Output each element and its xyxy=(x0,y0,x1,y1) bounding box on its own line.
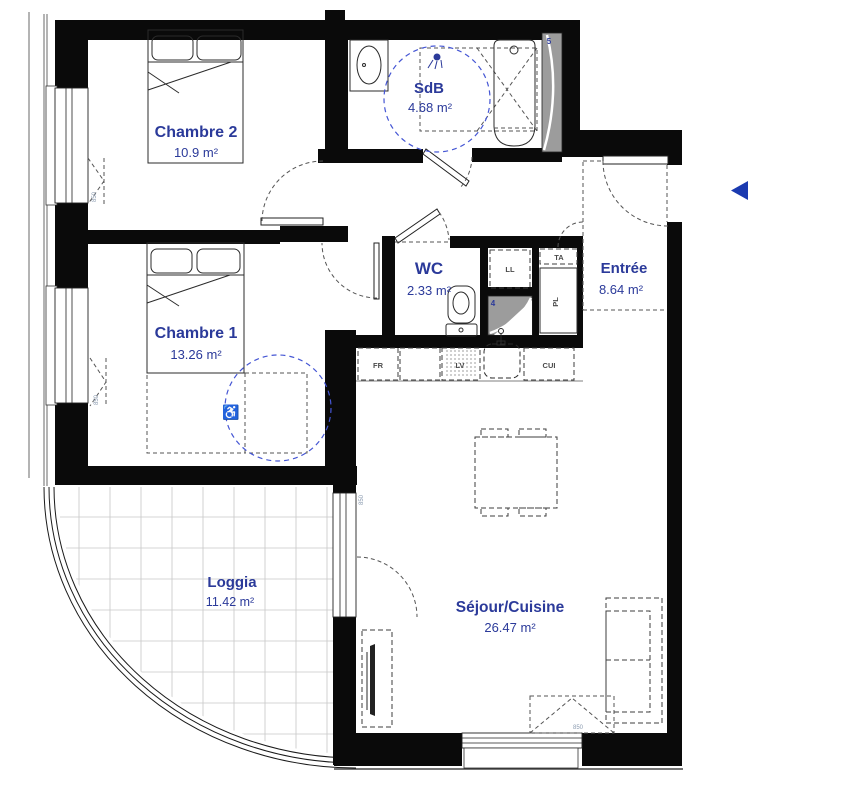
wheelchair-icon: ♿ xyxy=(222,404,239,421)
chambre1-label: Chambre 1 xyxy=(155,325,238,342)
cooktop-label: CUI xyxy=(543,361,556,370)
loggia-door-window xyxy=(333,493,417,617)
chambre1-window xyxy=(46,286,88,405)
sill-dim-2: 850 xyxy=(94,394,100,405)
shaft-5-label: 5 xyxy=(547,37,552,46)
entrance-arrow-icon xyxy=(731,181,748,200)
wc-area: 2.33 m² xyxy=(407,283,452,298)
entry-door xyxy=(603,156,668,226)
shaft-4-label: 4 xyxy=(491,299,496,308)
dishwasher-label: LV xyxy=(455,361,464,370)
closet-label: PL xyxy=(551,297,560,307)
chambre1-door xyxy=(322,243,379,299)
sill-dim-1: 850 xyxy=(92,191,98,202)
sill-dim-4: 850 xyxy=(573,725,584,731)
chambre2-label: Chambre 2 xyxy=(155,124,238,141)
technical-shaft-5: 5 xyxy=(542,33,562,152)
sill-dim-3: 850 xyxy=(359,494,365,505)
loggia-label: Loggia xyxy=(207,574,257,591)
facade-lines xyxy=(29,12,47,486)
entree-label: Entrée xyxy=(601,260,648,277)
accessibility-circle-chambre1: ♿ xyxy=(222,355,331,461)
sdb-label: SdB xyxy=(414,80,444,97)
technical-panel-label: TA xyxy=(554,253,564,262)
shower-icon xyxy=(428,54,442,70)
tv-cabinet xyxy=(362,630,392,727)
wc-label: WC xyxy=(415,259,443,278)
dining-table xyxy=(475,429,557,516)
loggia-railing xyxy=(44,487,356,768)
chambre1-area: 13.26 m² xyxy=(170,347,222,362)
chambre2-window xyxy=(46,86,88,205)
sdb-area: 4.68 m² xyxy=(408,100,453,115)
entree-area: 8.64 m² xyxy=(599,282,644,297)
sejour-label: Séjour/Cuisine xyxy=(456,599,565,616)
chambre2-door xyxy=(261,161,323,225)
sejour-area: 26.47 m² xyxy=(484,620,536,635)
loggia-area: 11.42 m² xyxy=(206,595,254,609)
sdb-door xyxy=(423,149,472,188)
floor-plan-drawing: 5 4 xyxy=(0,0,845,800)
bathroom-sink xyxy=(350,40,388,91)
washing-machine-label: LL xyxy=(505,265,515,274)
technical-shaft-4: 4 xyxy=(488,296,532,335)
chambre2-area: 10.9 m² xyxy=(174,145,219,160)
bathtub xyxy=(494,40,535,146)
chambre2-bed xyxy=(148,30,243,163)
walls xyxy=(55,10,682,766)
loggia-floor-tiles xyxy=(44,487,356,768)
floor-plan-page: 5 4 xyxy=(0,0,845,800)
wc-door xyxy=(395,209,449,243)
fridge-label: FR xyxy=(373,361,384,370)
accessibility-circle-sdb xyxy=(384,46,490,152)
